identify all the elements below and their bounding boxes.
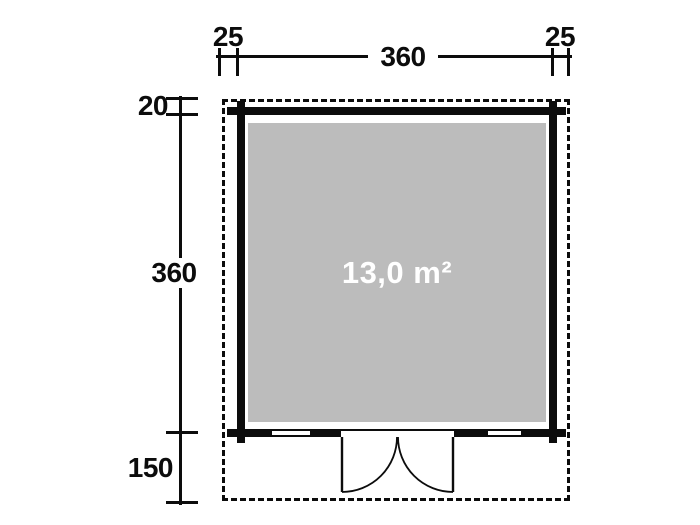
dim-tick-top-inner-left — [236, 48, 239, 76]
double-door-swing — [334, 429, 462, 501]
dim-tick-top-inner-right — [551, 48, 554, 76]
dim-label-side-depth: 360 — [136, 258, 212, 288]
floor-area: 13,0 m² — [248, 123, 546, 422]
wall-left — [237, 101, 245, 443]
window-right — [486, 429, 523, 437]
dim-tick-left-roof-bottom — [166, 501, 198, 504]
dim-label-top-width: 360 — [368, 42, 438, 72]
dim-tick-left-wall-bottom — [166, 431, 198, 434]
dim-tick-top-outer-left — [218, 48, 221, 76]
dim-label-top-right-offset: 25 — [534, 22, 586, 52]
dim-tick-top-outer-right — [567, 48, 570, 76]
wall-right — [549, 101, 557, 443]
window-left — [270, 429, 312, 437]
dim-label-side-top-offset: 20 — [116, 91, 168, 121]
wall-front-segment — [523, 429, 566, 437]
dim-tick-left-wall-top — [166, 113, 198, 116]
door-swing-arc-right — [398, 437, 453, 492]
dim-line-left — [179, 96, 182, 505]
dim-label-side-front: 150 — [108, 453, 173, 483]
floor-plan-canvas: 25 360 25 20 360 150 13,0 m² — [0, 0, 700, 525]
wall-front-segment — [227, 429, 270, 437]
door-swing-arc-left — [342, 437, 397, 492]
dim-tick-left-roof — [166, 97, 198, 100]
dim-label-top-left-offset: 25 — [202, 22, 254, 52]
floor-area-label: 13,0 m² — [342, 255, 452, 291]
wall-back — [227, 107, 566, 115]
